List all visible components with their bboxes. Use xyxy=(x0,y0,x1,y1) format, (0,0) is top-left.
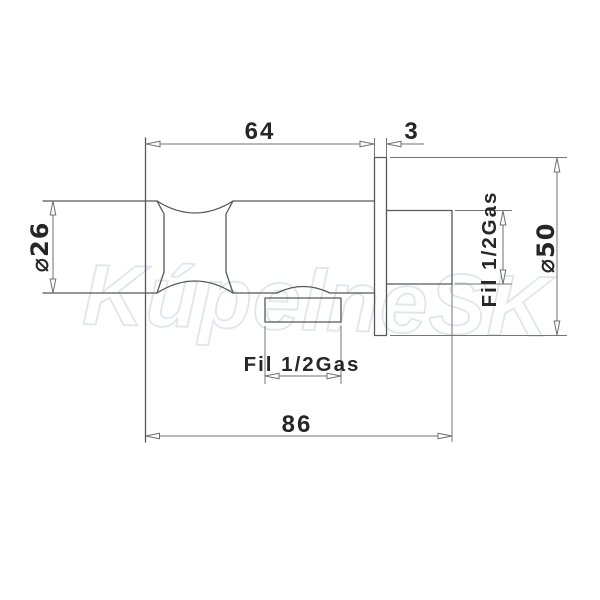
dia50-label: ⌀50 xyxy=(532,223,560,274)
dim86-arrow-right xyxy=(438,433,452,439)
dim64-label: 64 xyxy=(245,118,276,145)
technical-drawing-canvas: KúpelneSK 64 3 xyxy=(0,0,600,600)
dim3-arrow xyxy=(387,141,401,147)
rear-thread-label: Fil 1/2Gas xyxy=(478,191,501,308)
dim86-label: 86 xyxy=(282,411,313,438)
dim-flange-thickness: 3 xyxy=(387,118,425,158)
dim64-arrow-left xyxy=(146,141,160,147)
technical-drawing: KúpelneSK 64 3 xyxy=(0,0,600,600)
dia50-arrow-bottom xyxy=(554,321,560,335)
dia26-arrow-top xyxy=(50,201,56,215)
dim-length-to-wall: 64 xyxy=(146,118,375,158)
dim64-arrow-right xyxy=(360,141,374,147)
holder-top-concave-arc xyxy=(157,201,233,213)
dim3-label: 3 xyxy=(404,118,419,145)
rear-thread-arrow-top xyxy=(500,211,506,225)
dim-body-diameter: ⌀26 xyxy=(26,201,56,293)
dia26-arrow-bottom xyxy=(50,279,56,293)
dia26-label: ⌀26 xyxy=(26,222,54,273)
bottom-thread-label: Fil 1/2Gas xyxy=(244,353,361,376)
dia50-arrow-top xyxy=(554,158,560,172)
dim86-arrow-left xyxy=(146,433,160,439)
